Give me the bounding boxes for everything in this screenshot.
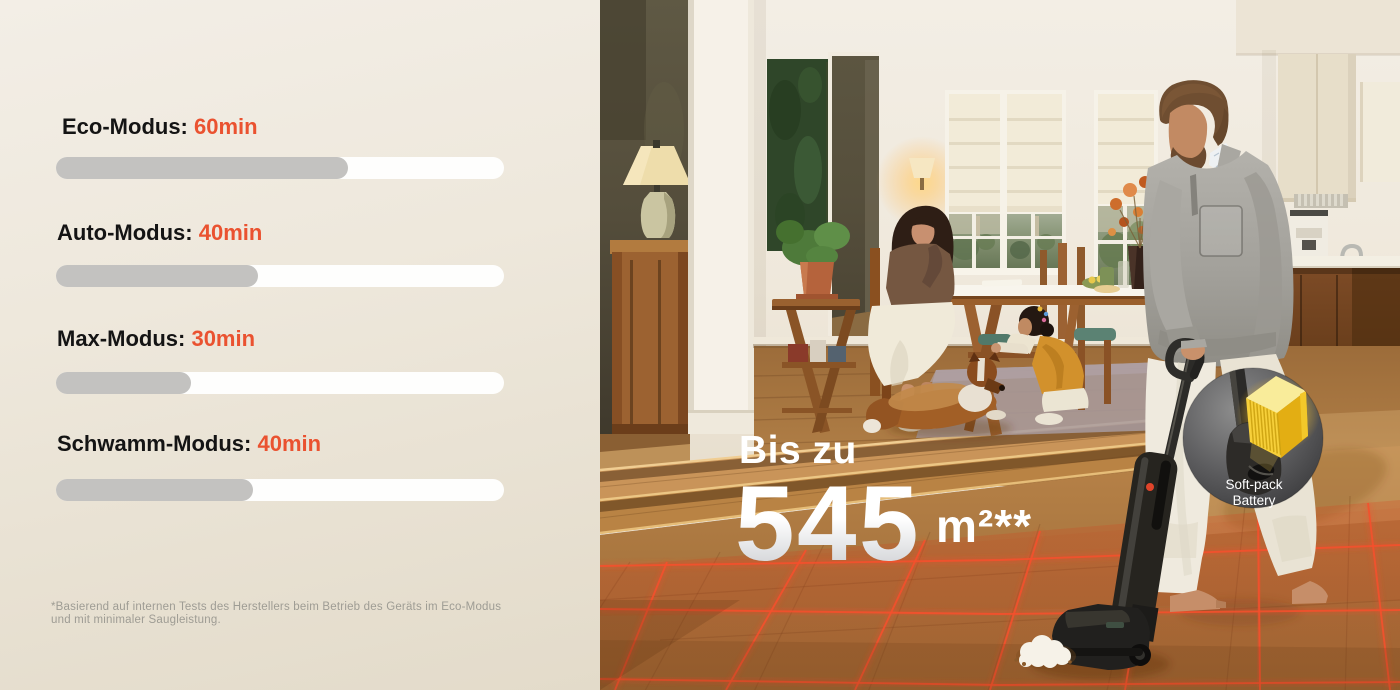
svg-text:Soft-pack: Soft-pack xyxy=(1225,477,1282,492)
svg-text:Battery: Battery xyxy=(1233,493,1276,508)
